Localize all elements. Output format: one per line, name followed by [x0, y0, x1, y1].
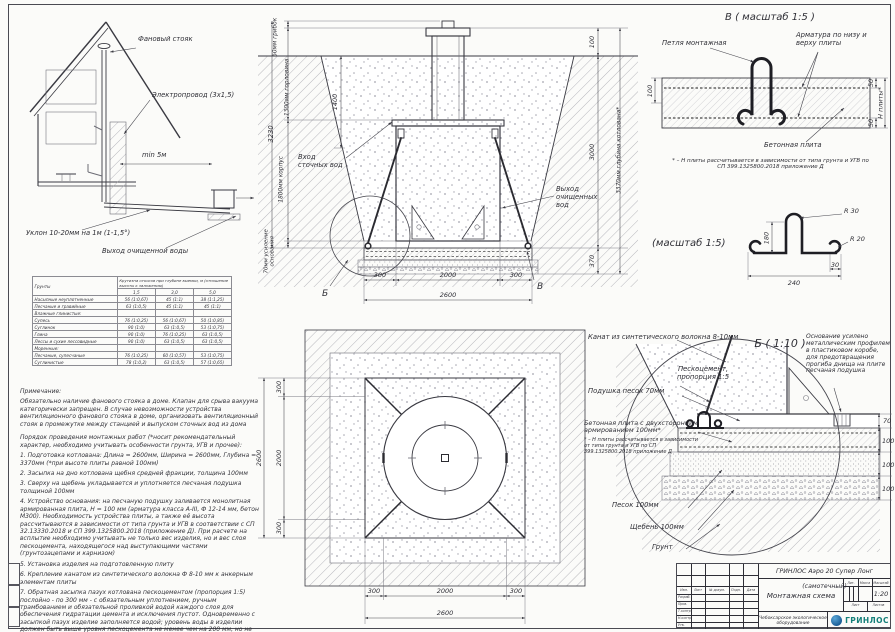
margin-box-1 [8, 563, 20, 585]
plan-plate-and-tank [365, 378, 525, 538]
svg-text:300: 300 [275, 522, 283, 534]
table-row: Суглинистые78 (1:0,2)63 (1:0,5)57 (1:0,6… [33, 359, 232, 366]
soil-label: Грунт [652, 544, 702, 552]
detail-v-footnote: * – Н плиты рассчитывается в зависимости… [668, 158, 873, 171]
house-structure [30, 22, 180, 214]
bend-dimensions: 180 R 30 R 20 30 240 [748, 207, 865, 287]
logo-cell: ГРИНЛОС [828, 612, 892, 629]
installation-notes: Примечание: Обязательно наличие фанового… [20, 388, 260, 632]
bend-detail-title: (масштаб 1:5) [652, 238, 752, 250]
svg-text:300: 300 [374, 271, 386, 279]
company-name: Чебоксарское экологическое оборудование [759, 612, 828, 629]
col-masshtab: Масштаб [872, 581, 890, 585]
drawing-sheet: Фановый стояк Электропровод (3х1,5) min … [0, 0, 895, 632]
min-distance-label: min 5м [142, 152, 182, 160]
margin-box-3 [8, 607, 20, 627]
col-massa: Масса [858, 581, 872, 585]
sand-pad-label: Подушка песок 70мм [588, 388, 688, 396]
svg-text:2600: 2600 [440, 291, 457, 299]
svg-text:100: 100 [882, 437, 894, 445]
notes-item: 7. Обратная засыпка пазух котлована песк… [20, 589, 260, 632]
notes-item: 5. Установка изделия на подготовленную п… [20, 561, 260, 568]
row-tkontr: Т.контр. [678, 609, 705, 613]
dim-body-label: 1800мм корпус [279, 141, 286, 217]
table-row: Глина90 (1:0)76 (1:0,25)63 (1:0,5) [33, 331, 232, 338]
col-30: 3,0 [155, 289, 193, 296]
svg-text:300: 300 [368, 587, 380, 595]
scale-grid: Лит. Масса Масштаб 1:20 Лист Листов [844, 579, 890, 612]
detail-b-dimensions: 70 100 100 100 [879, 414, 894, 500]
table-row: Супесь76 (1:0,25)56 (1:0,67)50 (1:0,85) [33, 317, 232, 324]
dim-cap-label: 60мм грибок [273, 7, 280, 67]
svg-text:Н плиты*: Н плиты* [877, 86, 885, 119]
dim-base-label: 70мм усиление основания [264, 222, 277, 280]
svg-text:50: 50 [867, 79, 875, 87]
soil-slope-table: Грунты Крутизна откосов при глубине выем… [32, 276, 232, 366]
dim-3230-label: 3230 [268, 99, 276, 169]
table-row: Песчаные, супесчаные76 (1:0,25)60 (1:0,5… [33, 352, 232, 359]
house-section-drawing [18, 14, 258, 264]
svg-text:370: 370 [588, 255, 596, 267]
plate-label: Бетонная плита с двухсторонним армирован… [584, 420, 702, 435]
sandcement-label: Пескоцемент, пропорция 1:5 [658, 366, 748, 382]
svg-text:100: 100 [882, 485, 894, 493]
notes-item: 6. Крепление канатом из синтетического в… [20, 571, 260, 586]
svg-text:2000: 2000 [275, 450, 283, 467]
svg-text:30: 30 [831, 261, 839, 269]
dim-depth-label: 3370мм глубина котлована* [617, 98, 624, 202]
table-row: Моренные: [33, 345, 232, 352]
row-nkontr: Н.контр. [678, 616, 705, 620]
plate-footnote: * – Н плиты рассчитывается в зависимости… [584, 438, 702, 455]
svg-text:100: 100 [588, 36, 596, 48]
notes-item: 1. Подготовка котлована: Длина = 2600мм,… [20, 452, 260, 467]
row-utv: Утв. [678, 623, 705, 627]
vent-stack-pipe [56, 43, 110, 202]
concrete-plate-label: Бетонная плита [764, 142, 834, 150]
notes-item: 2. Засыпка на дно котлована щебня средне… [20, 470, 260, 477]
table-row: Грунты Крутизна откосов при глубине выем… [33, 277, 232, 289]
revision-grid: Изм. Лист № докум. Подп. Дата Разраб. Пр… [677, 564, 759, 629]
doc-subtitle: Монтажная схема [759, 579, 844, 612]
grinlos-logo-icon [831, 615, 842, 626]
col-data: Дата [743, 588, 759, 592]
sheet-label: Лист [844, 603, 867, 607]
notes-item: 4. Устройство основания: на песчаную под… [20, 498, 260, 558]
notes-heading: Примечание: [20, 388, 260, 395]
notes-paragraph: Обязательно наличие фанового стояка в до… [20, 398, 260, 428]
col-group-header: Крутизна откосов при глубине выемки, м (… [117, 277, 231, 289]
notes-order-heading: Порядок проведения монтажных работ (*нос… [20, 434, 260, 449]
svg-text:50: 50 [867, 119, 875, 127]
sand-layer-label: Песок 100мм [612, 502, 692, 510]
svg-text:100: 100 [646, 85, 654, 97]
doc-title: ГРИНЛОС Аэро 20 Супер Лонг (самотечный) [759, 564, 890, 579]
svg-text:180: 180 [763, 232, 771, 244]
pipe-slope-label: Уклон 10-20мм на 1м (1-1,5°) [26, 230, 156, 238]
svg-text:2000: 2000 [437, 587, 454, 595]
notes-item: 3. Сверху на щебень укладывается и уплот… [20, 480, 260, 495]
base-layers [358, 241, 538, 274]
rebar-label: Арматура по низу и верху плиты [796, 32, 878, 48]
table-row: Насыпные неуплотненные56 (1:0,67)45 (1:1… [33, 296, 232, 303]
table-row: Лессы и сухие лессовидные90 (1:0)63 (1:0… [33, 338, 232, 345]
row-prov: Пров. [678, 602, 705, 606]
svg-text:300: 300 [275, 381, 283, 393]
rope-label: Канат из синтетического волокна 8-10мм [588, 334, 778, 342]
col-izm: Изм. [677, 588, 691, 592]
outlet-label: Выход очищенных вод [556, 186, 608, 209]
svg-text:300: 300 [510, 271, 522, 279]
col-soil-header: Грунты [33, 277, 118, 296]
col-podp: Подп. [729, 588, 743, 592]
detail-v-marker: В [537, 282, 543, 292]
svg-text:2000: 2000 [440, 271, 457, 279]
mounting-loop-label: Петля монтажная [662, 40, 734, 48]
table-row: Суглинок90 (1:0)63 (1:0,5)53 (1:0,75) [33, 324, 232, 331]
detail-v-title: В ( масштаб 1:5 ) [690, 12, 850, 24]
svg-text:2600: 2600 [437, 609, 454, 617]
svg-text:300: 300 [510, 587, 522, 595]
row-razrab: Разраб. [678, 595, 705, 599]
dim-neck-label: 1300мм горловина [285, 45, 292, 129]
col-doc: № докум. [705, 588, 729, 592]
col-list: Лист [691, 588, 705, 592]
svg-text:3000: 3000 [588, 144, 596, 161]
col-50: 5,0 [193, 289, 231, 296]
svg-text:240: 240 [788, 279, 800, 287]
svg-text:70: 70 [883, 417, 891, 425]
table-row: Песчаные и гравийные63 (1:0,5)45 (1:1)45… [33, 303, 232, 310]
concrete-slab [662, 59, 870, 129]
electric-cable-label: Электропровод (3х1,5) [152, 92, 247, 100]
base-reinforcement-note: Основание усилено металлическим профилем… [806, 334, 890, 375]
inlet-label: Вход сточных вод [298, 154, 344, 170]
table-row: Влажные глинистые: [33, 310, 232, 317]
pit-plan-drawing: 300 2000 300 2600 300 2000 300 2600 [250, 328, 595, 628]
svg-text:1400: 1400 [331, 94, 339, 111]
vent-stack-label: Фановый стояк [138, 36, 208, 44]
col-15: 1,5 [117, 289, 155, 296]
title-block: Изм. Лист № докум. Подп. Дата Разраб. Пр… [676, 563, 891, 628]
gravel-layer-label: Щебень 100мм [630, 524, 710, 532]
grinlos-logo-text: ГРИНЛОС [845, 616, 889, 625]
margin-box-2 [8, 585, 20, 607]
svg-text:100: 100 [882, 461, 894, 469]
col-lit: Лит. [844, 581, 858, 585]
svg-text:R 30: R 30 [844, 207, 859, 215]
scale-value: 1:20 [872, 587, 890, 601]
detail-b-marker: Б [322, 289, 328, 299]
clean-water-outlet-label: Выход очищенной воды [102, 248, 217, 256]
svg-text:R 20: R 20 [850, 235, 865, 243]
sheets-label: Листов [867, 603, 890, 607]
